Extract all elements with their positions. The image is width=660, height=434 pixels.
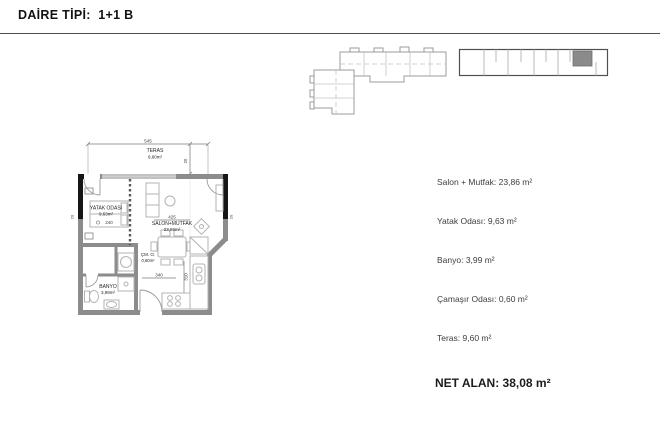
sofa: [146, 183, 159, 217]
dim-salon-width: 425: [168, 215, 176, 220]
terrace-window: [102, 175, 176, 178]
stove-counter: [162, 293, 190, 309]
dim-wall-right: 20: [229, 214, 234, 219]
dim-teras-width: 545: [144, 139, 152, 144]
area-salon-mutfak: 23,86m²: [164, 227, 181, 232]
coffee-table: [165, 196, 175, 206]
unit-floor-plan: 545 20 425 240 340 310 20 20 TERAS 9,60m…: [60, 125, 250, 325]
unit-highlight: [573, 51, 592, 66]
dim-teras-depth: 20: [183, 158, 188, 163]
label-camasir: ÇM. O.: [141, 252, 155, 257]
label-teras: TERAS: [147, 148, 164, 154]
summary-net-alan: NET ALAN: 38,08 m²: [435, 374, 642, 393]
tv-unit: [216, 185, 223, 211]
unit-summary: NET ALAN: 38,08 m² BALKONLU NET ALAN: 47…: [435, 336, 642, 434]
room-area-item: Çamaşır Odası: 0,60 m²: [437, 293, 532, 306]
dim-kitchen-depth: 310: [184, 273, 189, 281]
site-plan-overview: [306, 44, 458, 116]
dim-wall-left: 20: [70, 214, 75, 219]
room-area-item: Banyo: 3,99 m²: [437, 254, 532, 267]
header-divider: [0, 33, 660, 34]
room-area-item: Salon + Mutfak: 23,86 m²: [437, 176, 532, 189]
room-area-item: Yatak Odası: 9,63 m²: [437, 215, 532, 228]
toilet: [85, 291, 90, 302]
block-plan-locator: [458, 48, 610, 78]
area-banyo: 3,99m²: [101, 290, 116, 295]
site-plan-outline: [310, 47, 446, 114]
floor-plan-sheet: DAİRE TİPİ: 1+1 B: [0, 0, 660, 434]
area-camasir: 0,60m²: [141, 258, 155, 263]
area-teras: 9,60m²: [148, 155, 163, 160]
area-yatak-odasi: 9,63m²: [99, 212, 114, 217]
dining-table: [158, 237, 186, 257]
dim-yatak-width: 240: [105, 220, 113, 225]
dim-hall-width: 340: [155, 273, 163, 278]
page-title: DAİRE TİPİ: 1+1 B: [18, 8, 134, 22]
